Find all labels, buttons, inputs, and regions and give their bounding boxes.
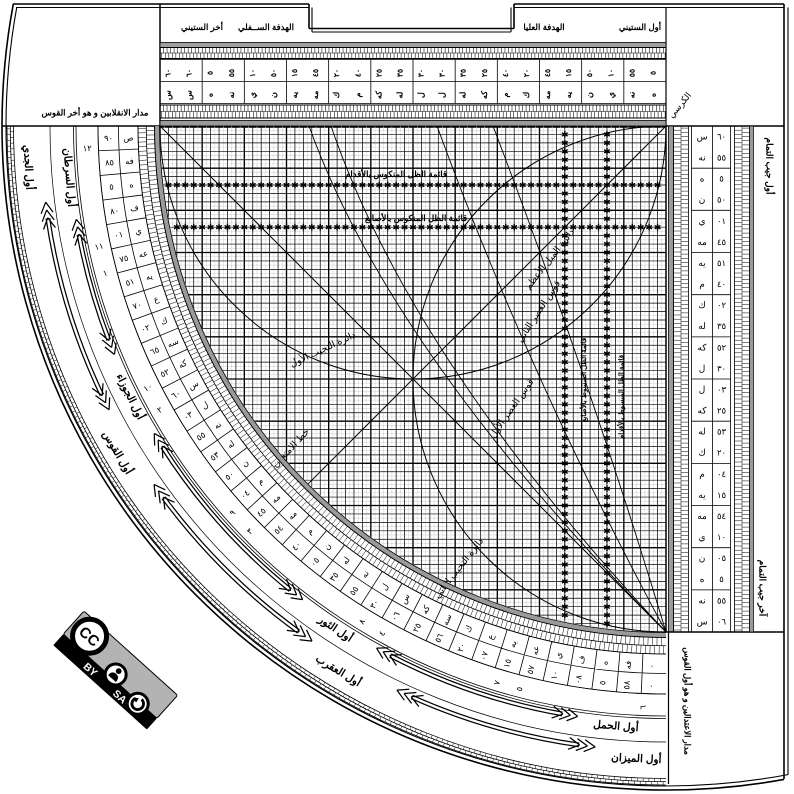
svg-text:يه: يه — [564, 91, 573, 98]
svg-text:ن: ن — [699, 195, 705, 205]
svg-text:٥: ٥ — [719, 174, 724, 184]
svg-text:م: م — [699, 279, 704, 290]
svg-text:١٥: ١٥ — [717, 490, 726, 500]
svg-text:٢٠: ٢٠ — [332, 69, 341, 77]
svg-text:٥٥: ٥٥ — [227, 69, 236, 77]
svg-text:٠: ٠ — [646, 664, 656, 669]
svg-text:س: س — [164, 90, 174, 100]
svg-text:ك: ك — [332, 92, 341, 99]
svg-text:٢٥: ٢٥ — [717, 406, 726, 416]
svg-text:ي: ي — [699, 216, 706, 226]
svg-text:ك: ك — [522, 92, 531, 99]
svg-text:٢٠: ٢٠ — [522, 69, 531, 77]
svg-text:م: م — [501, 92, 511, 97]
svg-text:١٢: ١٢ — [83, 143, 92, 153]
svg-text:٠٢: ٠٢ — [717, 300, 726, 310]
svg-text:ل: ل — [417, 92, 426, 98]
svg-text:٥٢: ٥٢ — [717, 342, 726, 352]
svg-text:٣٥: ٣٥ — [459, 69, 468, 77]
svg-text:٥: ٥ — [719, 574, 724, 584]
svg-text:الهدفة العليا: الهدفة العليا — [523, 22, 564, 33]
svg-text:له: له — [698, 321, 705, 331]
svg-text:٦: ٦ — [638, 705, 648, 710]
svg-text:كه: كه — [698, 342, 708, 352]
svg-text:م: م — [353, 92, 363, 97]
svg-text:٢٠: ٢٠ — [717, 448, 726, 458]
svg-text:٥١: ٥١ — [717, 258, 726, 268]
svg-text:ي: ي — [699, 532, 706, 542]
svg-text:كه: كه — [480, 91, 489, 99]
svg-text:ل: ل — [438, 92, 447, 98]
svg-text:الهدفة الســفلي: الهدفة الســفلي — [238, 22, 294, 33]
svg-text:فه: فه — [125, 156, 134, 167]
svg-text:قائمة الظل المنكوس بالأصابع: قائمة الظل المنكوس بالأصابع — [365, 212, 467, 224]
svg-text:ه: ه — [700, 174, 705, 184]
svg-text:٠: ٠ — [646, 684, 656, 689]
svg-text:نه: نه — [698, 595, 705, 605]
svg-text:٥٥: ٥٥ — [627, 69, 636, 77]
svg-text:٣٠: ٣٠ — [417, 69, 426, 77]
svg-text:٥٥: ٥٥ — [717, 153, 726, 163]
svg-text:م: م — [699, 469, 704, 480]
svg-text:قائمة الظل المنكوس بالأقدام: قائمة الظل المنكوس بالأقدام — [345, 168, 447, 180]
svg-text:مه: مه — [697, 237, 707, 247]
svg-text:٢٥: ٢٥ — [480, 69, 489, 77]
svg-text:أخر الستيني: أخر الستيني — [181, 20, 224, 33]
svg-text:٥٠: ٥٠ — [269, 69, 278, 77]
svg-text:٤٠: ٤٠ — [353, 69, 362, 77]
svg-text:مدار الاعتدالين و هو أول القوس: مدار الاعتدالين و هو أول القوس — [682, 647, 695, 755]
svg-text:مه: مه — [697, 511, 707, 521]
svg-text:نه: نه — [627, 92, 636, 99]
svg-text:٠١: ٠١ — [717, 216, 726, 226]
svg-text:٥٨: ٥٨ — [621, 680, 632, 690]
svg-text:٥٤: ٥٤ — [717, 511, 726, 521]
svg-text:س: س — [185, 90, 195, 100]
svg-text:١٠: ١٠ — [606, 69, 615, 77]
svg-text:ك: ك — [698, 448, 705, 458]
svg-text:س: س — [697, 131, 708, 142]
svg-text:٠٦: ٠٦ — [717, 616, 726, 626]
svg-text:ن: ن — [699, 553, 705, 563]
svg-text:س: س — [697, 616, 708, 627]
svg-text:٤٠: ٤٠ — [501, 69, 510, 77]
svg-text:يه: يه — [698, 258, 706, 268]
svg-text:يه: يه — [290, 91, 299, 98]
svg-text:٤٥: ٤٥ — [311, 69, 320, 77]
svg-text:كه: كه — [374, 91, 383, 99]
svg-text:ل: ل — [699, 384, 705, 394]
svg-text:ف: ف — [576, 655, 587, 665]
svg-text:٣٥: ٣٥ — [717, 321, 726, 331]
svg-text:١٠: ١٠ — [248, 69, 257, 77]
svg-text:١٠: ١٠ — [549, 670, 561, 681]
svg-text:٠٣: ٠٣ — [717, 384, 726, 394]
svg-text:٠٥: ٠٥ — [717, 553, 726, 563]
svg-text:٦٠: ٦٠ — [185, 69, 194, 77]
svg-text:٣٠: ٣٠ — [438, 69, 447, 77]
svg-text:ي: ي — [248, 92, 258, 98]
svg-text:٦٠: ٦٠ — [717, 131, 726, 141]
svg-text:٨٥: ٨٥ — [105, 157, 115, 168]
svg-text:ف: ف — [129, 202, 139, 213]
svg-text:٥٥: ٥٥ — [717, 595, 726, 605]
svg-text:ه: ه — [648, 93, 657, 97]
svg-text:له: له — [395, 92, 404, 99]
svg-text:١٥: ١٥ — [564, 69, 573, 77]
svg-text:٥٠: ٥٠ — [585, 69, 594, 77]
svg-text:نه: نه — [227, 92, 236, 99]
svg-text:٠١: ٠١ — [113, 229, 124, 241]
svg-text:٥٣: ٥٣ — [717, 427, 726, 437]
svg-text:له: له — [459, 92, 468, 99]
svg-text:٥: ٥ — [648, 71, 657, 75]
svg-text:ن: ن — [269, 92, 278, 98]
svg-text:ي: ي — [606, 92, 616, 98]
svg-text:يه: يه — [698, 490, 706, 500]
svg-text:كه: كه — [698, 406, 708, 416]
svg-text:ل: ل — [699, 363, 705, 373]
svg-text:ه: ه — [206, 93, 215, 97]
svg-text:٦٠: ٦٠ — [164, 69, 173, 77]
svg-text:ه: ه — [700, 574, 705, 584]
svg-text:آخر جيب التمام: آخر جيب التمام — [757, 560, 769, 618]
svg-text:ص: ص — [123, 133, 133, 143]
svg-text:٤٥: ٤٥ — [717, 237, 726, 247]
svg-text:٣٥: ٣٥ — [395, 69, 404, 77]
svg-text:٤٥: ٤٥ — [543, 69, 552, 77]
svg-text:له: له — [698, 427, 705, 437]
svg-text:فه: فه — [623, 660, 634, 669]
svg-text:٤٠: ٤٠ — [717, 279, 726, 289]
svg-text:مه: مه — [543, 91, 552, 100]
svg-text:نه: نه — [698, 153, 705, 163]
svg-text:٠٤: ٠٤ — [717, 469, 726, 479]
svg-text:أول جيب التمام: أول جيب التمام — [764, 138, 777, 195]
svg-text:٢٥: ٢٥ — [374, 69, 383, 77]
svg-text:ن: ن — [585, 92, 594, 98]
svg-text:مدار الانقلابين و هو أخر القوس: مدار الانقلابين و هو أخر القوس — [42, 106, 149, 119]
svg-text:١٥: ١٥ — [290, 69, 299, 77]
svg-text:٣٠: ٣٠ — [717, 363, 726, 373]
svg-text:أول الستيني: أول الستيني — [619, 20, 662, 33]
svg-text:٨٠: ٨٠ — [109, 205, 119, 216]
svg-text:ك: ك — [698, 300, 705, 310]
svg-text:٥٠: ٥٠ — [717, 195, 726, 205]
svg-text:مه: مه — [311, 91, 320, 100]
svg-text:٥: ٥ — [206, 71, 215, 75]
svg-text:١٠: ١٠ — [717, 532, 726, 542]
svg-text:٩٠: ٩٠ — [104, 133, 113, 143]
